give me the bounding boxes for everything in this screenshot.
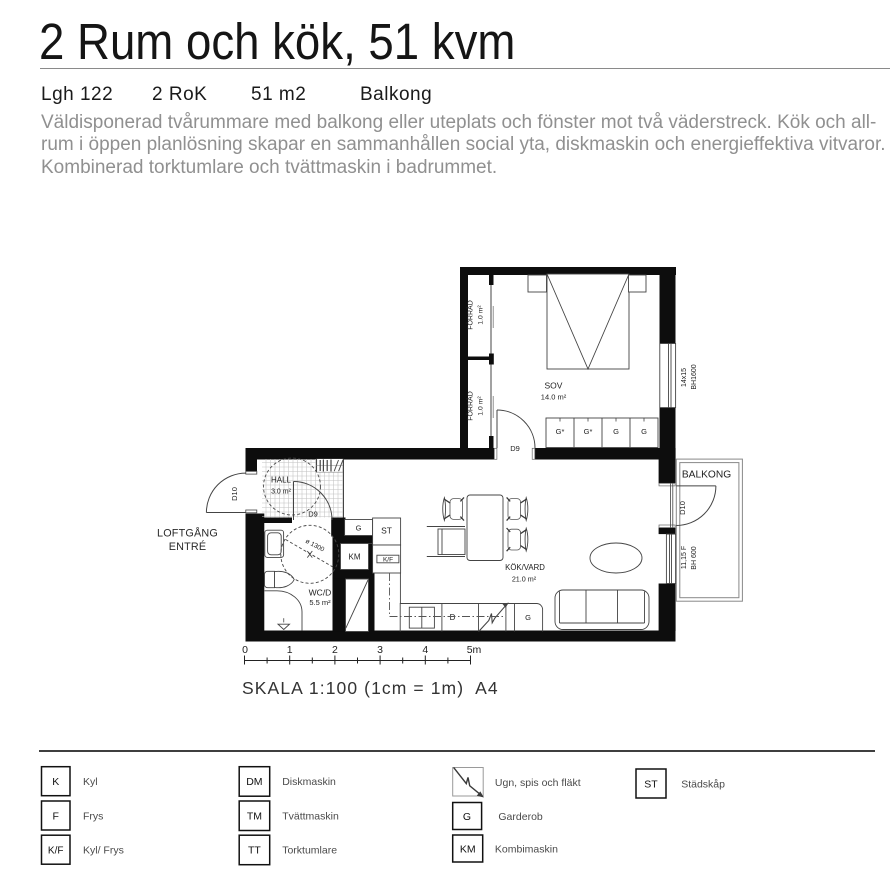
svg-text:DM: DM — [246, 776, 262, 788]
svg-text:ST: ST — [644, 779, 658, 791]
svg-text:Garderob: Garderob — [498, 811, 543, 823]
svg-text:Diskmaskin: Diskmaskin — [282, 776, 336, 788]
svg-text:F: F — [52, 810, 58, 822]
svg-text:KM: KM — [460, 844, 476, 856]
svg-text:Kyl/ Frys: Kyl/ Frys — [83, 845, 124, 857]
svg-text:Tvättmaskin: Tvättmaskin — [282, 811, 339, 823]
svg-text:Kombimaskin: Kombimaskin — [495, 844, 558, 856]
svg-text:K/F: K/F — [48, 846, 64, 857]
svg-text:K: K — [52, 776, 59, 788]
svg-text:G: G — [463, 811, 471, 823]
svg-text:TM: TM — [247, 811, 262, 823]
svg-text:Frys: Frys — [83, 810, 103, 822]
svg-text:Kyl: Kyl — [83, 776, 98, 788]
svg-text:Ugn, spis och fläkt: Ugn, spis och fläkt — [495, 777, 581, 789]
svg-text:TT: TT — [248, 845, 261, 857]
svg-text:Städskåp: Städskåp — [681, 779, 725, 791]
svg-text:Torktumlare: Torktumlare — [282, 845, 337, 857]
